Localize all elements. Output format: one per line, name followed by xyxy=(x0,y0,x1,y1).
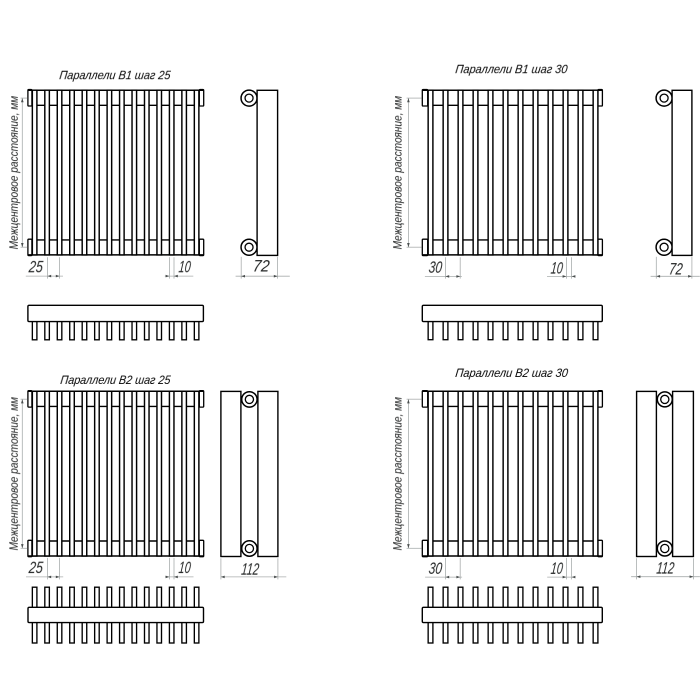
svg-text:30: 30 xyxy=(428,258,444,277)
svg-text:Межцентровое расстояние, мм: Межцентровое расстояние, мм xyxy=(8,397,21,551)
svg-text:112: 112 xyxy=(240,560,260,579)
svg-text:Параллели В2 шаг 30: Параллели В2 шаг 30 xyxy=(455,366,570,380)
svg-text:Параллели В1 шаг 30: Параллели В1 шаг 30 xyxy=(455,62,569,76)
svg-text:25: 25 xyxy=(27,558,44,577)
svg-text:30: 30 xyxy=(428,559,444,578)
svg-text:Межцентровое расстояние, мм: Межцентровое расстояние, мм xyxy=(392,397,405,551)
svg-text:Межцентровое расстояние, мм: Межцентровое расстояние, мм xyxy=(8,96,21,250)
svg-text:Межцентровое расстояние, мм: Межцентровое расстояние, мм xyxy=(392,96,405,250)
svg-text:Параллели В1 шаг 25: Параллели В1 шаг 25 xyxy=(59,68,172,82)
svg-text:72: 72 xyxy=(668,260,683,279)
svg-text:Параллели В2 шаг 25: Параллели В2 шаг 25 xyxy=(60,373,172,387)
svg-text:25: 25 xyxy=(27,257,44,276)
svg-text:72: 72 xyxy=(252,257,270,276)
svg-text:112: 112 xyxy=(656,559,676,578)
